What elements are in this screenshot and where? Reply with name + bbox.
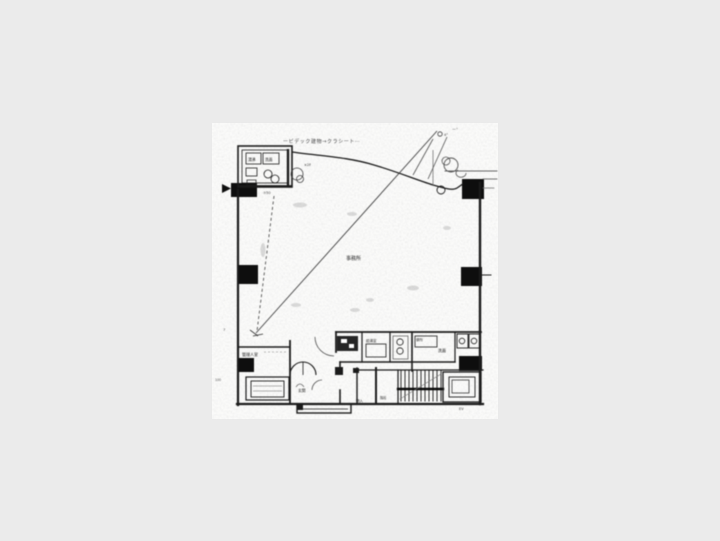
label-elevator: EV bbox=[459, 407, 464, 411]
kitchenette-counter bbox=[337, 336, 358, 351]
column bbox=[237, 358, 254, 372]
label-pantry: 給湯室 bbox=[366, 338, 377, 343]
annotation-top-note: ービデック建物→クラシート⋯ bbox=[283, 138, 361, 145]
annotation-level: ⑦50 bbox=[263, 191, 271, 195]
annotation-angle: 4° bbox=[444, 133, 448, 137]
label-washstand: 洗面 bbox=[438, 347, 446, 353]
annotation-corridor: ×2F bbox=[304, 163, 311, 167]
floorplan-drawing: ービデック建物→クラシート⋯ ー⌝ 4° ⑦50 ×2F 湯沸 洗面 事務所 管… bbox=[212, 123, 498, 419]
label-storage: 物入 bbox=[356, 398, 364, 403]
label-unit-wash: 洗面 bbox=[265, 157, 273, 162]
screenshot-canvas: ービデック建物→クラシート⋯ ー⌝ 4° ⑦50 ×2F 湯沸 洗面 事務所 管… bbox=[0, 0, 720, 541]
label-unit-sink: 湯沸 bbox=[248, 157, 256, 162]
label-center-room: 事務所 bbox=[346, 255, 361, 262]
label-entrance: 玄関 bbox=[298, 388, 306, 393]
column bbox=[238, 265, 258, 284]
column bbox=[459, 356, 482, 371]
floorplan-page: ービデック建物→クラシート⋯ ー⌝ 4° ⑦50 ×2F 湯沸 洗面 事務所 管… bbox=[212, 123, 498, 419]
label-toilet: 便所 bbox=[416, 337, 424, 342]
label-manager-room: 管理人室 bbox=[242, 351, 258, 357]
dimension-tick-lower: 100 bbox=[215, 378, 221, 382]
annotation-top-right: ー⌝ bbox=[452, 127, 458, 132]
label-stairs: 階段 bbox=[380, 395, 387, 400]
